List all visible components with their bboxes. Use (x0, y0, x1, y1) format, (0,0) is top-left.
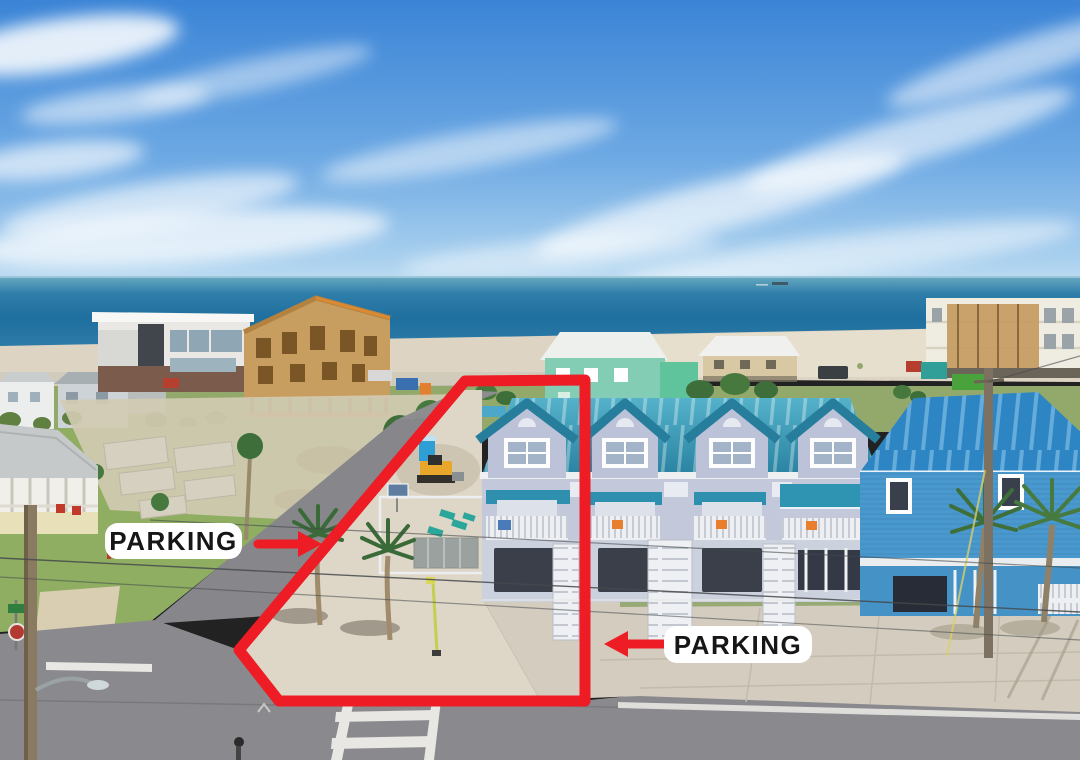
red-chair (56, 504, 65, 513)
lamp-head (87, 680, 109, 690)
rental-sign (498, 520, 511, 530)
stop-sign (9, 624, 25, 640)
red-chair (72, 506, 81, 515)
garage-door (702, 548, 762, 592)
pickup-truck (818, 366, 848, 379)
stilt-house (698, 336, 800, 382)
community-pool (478, 406, 506, 417)
parking-label-left: PARKING (105, 523, 242, 559)
parking-label-right: PARKING (664, 626, 812, 663)
sky (0, 0, 1080, 303)
parking-label-right-text: PARKING (674, 632, 802, 658)
blue-machine (396, 378, 418, 390)
red-machine (906, 361, 922, 372)
beach-flag (426, 577, 435, 584)
work-truck (368, 370, 392, 381)
photo-scene (0, 0, 1080, 760)
teal-dumpster (921, 362, 947, 379)
carport (893, 576, 947, 612)
red-truck (163, 378, 179, 388)
annotated-aerial-photo: PARKING PARKING (0, 0, 1080, 760)
parking-label-left-text: PARKING (109, 528, 237, 554)
street-name-sign (8, 604, 26, 613)
boat (772, 282, 788, 285)
rental-sign (716, 520, 727, 529)
rental-sign (612, 520, 623, 529)
rental-sign (806, 521, 817, 530)
condo-construction (926, 298, 1080, 378)
storage-enclosure (414, 538, 478, 568)
